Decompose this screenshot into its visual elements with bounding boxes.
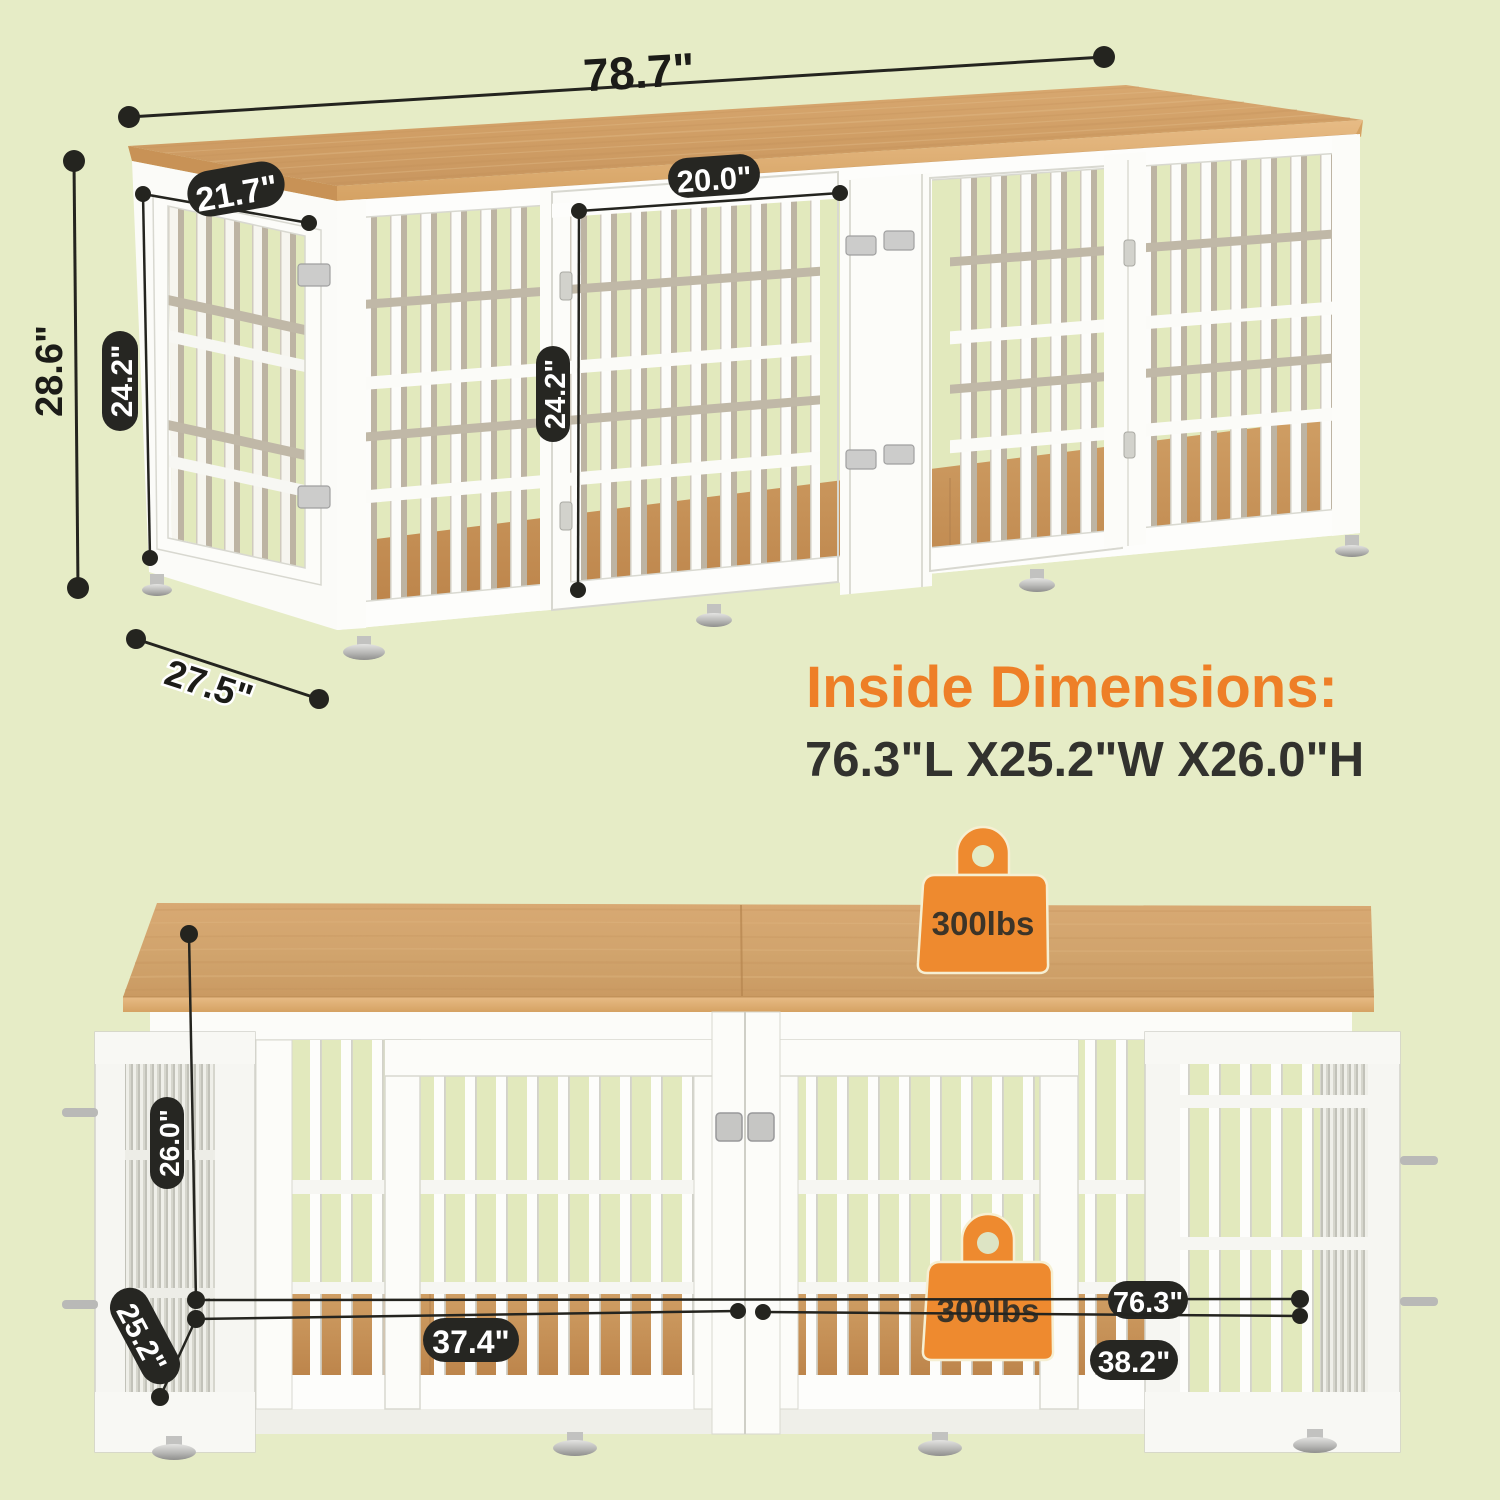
svg-text:38.2": 38.2" xyxy=(1098,1346,1171,1379)
svg-text:76.3"L X25.2"W X26.0"H: 76.3"L X25.2"W X26.0"H xyxy=(805,733,1364,787)
svg-text:300lbs: 300lbs xyxy=(937,1292,1040,1329)
svg-text:26.0": 26.0" xyxy=(154,1109,185,1177)
svg-text:37.4": 37.4" xyxy=(432,1324,509,1360)
svg-text:24.2": 24.2" xyxy=(540,359,572,429)
svg-text:20.0": 20.0" xyxy=(676,159,753,199)
svg-text:Inside Dimensions:: Inside Dimensions: xyxy=(806,655,1338,720)
svg-text:24.2": 24.2" xyxy=(106,345,139,418)
svg-text:78.7": 78.7" xyxy=(582,43,696,102)
svg-text:300lbs: 300lbs xyxy=(932,905,1035,942)
svg-text:28.6": 28.6" xyxy=(29,325,71,417)
